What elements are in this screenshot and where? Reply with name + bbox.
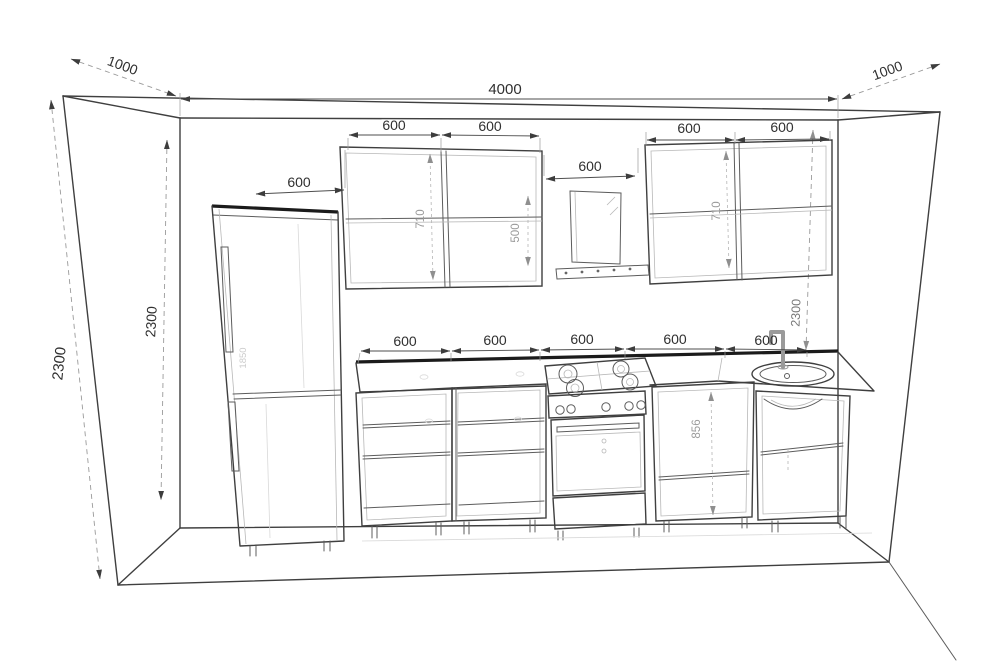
stove-burners	[559, 361, 638, 397]
dim-base-3-label: 600	[570, 331, 594, 347]
kitchen-drawing-canvas: 4000 1000 1000 2300 2300 2300 1850 60	[0, 0, 1000, 666]
dim-depth-right-label: 1000	[870, 57, 905, 83]
dim-height-inner: 2300	[142, 140, 167, 500]
dim-hood-clearance-label: 500	[510, 223, 522, 242]
dim-wall-left-2-label: 600	[478, 118, 502, 134]
dim-height-outer: 2300	[49, 100, 100, 579]
hood-shelf	[556, 265, 649, 279]
dim-room-width-label: 4000	[488, 81, 521, 98]
stove-drawer	[553, 493, 646, 529]
dim-base-4-label: 600	[663, 331, 687, 347]
cooker-hood	[556, 191, 649, 279]
sink-drain	[785, 374, 790, 379]
dim-hood-width-label: 600	[578, 158, 602, 174]
dim-height-inner-label: 2300	[142, 306, 160, 338]
fridge-height-label: 1850	[238, 347, 249, 368]
dim-base-height-label: 856	[691, 419, 703, 438]
dim-fridge-width: 600	[256, 150, 345, 194]
dim-height-right: 2300	[789, 130, 813, 350]
dim-depth-left: 1000	[71, 52, 176, 96]
dim-wall-right-2-label: 600	[770, 119, 794, 135]
dim-wall-left-1-label: 600	[382, 117, 406, 133]
dim-base-2-label: 600	[483, 332, 507, 348]
dim-depth-right: 1000	[842, 57, 940, 99]
base-cabinet-4	[652, 382, 754, 521]
dim-depth-left-label: 1000	[105, 52, 140, 78]
stove	[545, 358, 656, 540]
dim-height-right-label: 2300	[789, 299, 804, 327]
wall-cabinet-right-group	[645, 140, 832, 284]
wall-cabinet-left-group	[340, 147, 542, 289]
dim-wall-height-left: 710	[415, 154, 433, 280]
oven-door	[551, 415, 645, 496]
sink	[752, 362, 834, 386]
dim-fridge-width-label: 600	[287, 174, 311, 190]
dim-wall-right-1-label: 600	[677, 120, 701, 136]
base-cabinet-1	[356, 388, 452, 526]
kitchen-elevation-drawing: 4000 1000 1000 2300 2300 2300 1850 60	[0, 0, 1000, 666]
dim-wall-height-right: 710	[711, 151, 729, 268]
sink-cabinet	[756, 391, 850, 532]
dim-hood-width: 600	[544, 148, 638, 179]
base-cabinet-2	[452, 384, 546, 521]
dim-hood-clearance: 500	[510, 196, 528, 266]
dim-base-height: 856	[691, 392, 713, 515]
cabinet-feet	[362, 517, 872, 541]
dim-wall-height-right-label: 710	[711, 201, 723, 220]
dim-base-1-label: 600	[393, 333, 417, 349]
dim-height-outer-label: 2300	[49, 346, 69, 381]
stove-knobs	[556, 401, 645, 414]
oven-handle	[557, 423, 639, 432]
dim-base-5-label: 600	[754, 332, 778, 348]
dim-wall-height-left-label: 710	[415, 209, 427, 228]
fridge: 1850	[212, 206, 344, 556]
